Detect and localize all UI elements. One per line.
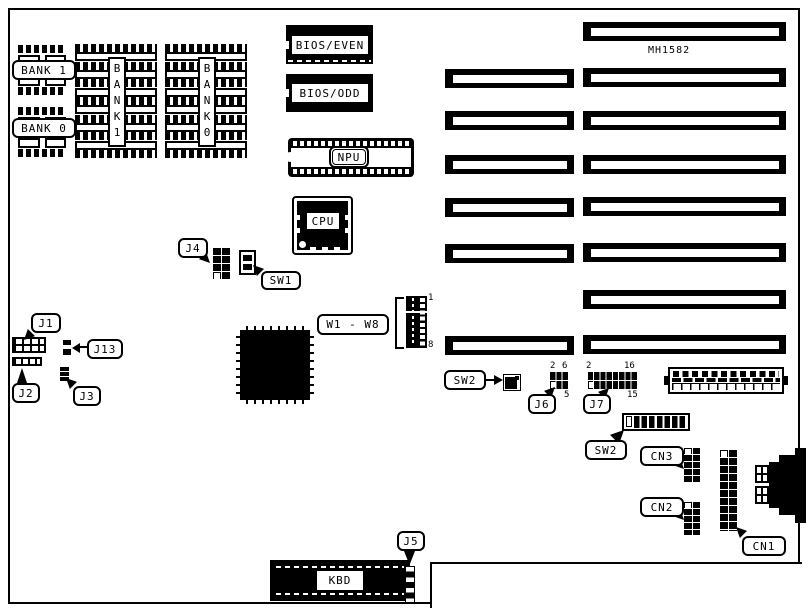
j6-pin5-number: 5	[564, 390, 569, 400]
isa-slot	[583, 197, 786, 216]
sw2a-switch	[503, 374, 521, 391]
j6-pin2-number: 2	[550, 361, 555, 371]
j7-label: J7	[583, 394, 611, 414]
bank1-label: BANK 1	[12, 60, 76, 80]
w1-w8-jumper-block	[406, 296, 427, 348]
j4-jumper-block	[213, 248, 230, 280]
cn3-label: CN3	[640, 446, 684, 466]
isa-slot	[445, 69, 574, 88]
cn3-connector-block	[684, 448, 700, 482]
cn1-label: CN1	[742, 536, 786, 556]
cn2-label: CN2	[640, 497, 684, 517]
j1-jumper-block	[12, 337, 46, 353]
j4-label: J4	[178, 238, 208, 258]
sw2b-dip-switch	[622, 413, 690, 431]
bank0-vertical-label: BANK0	[198, 57, 216, 147]
npu-label: NPU	[332, 149, 366, 165]
sw2a-label: SW2	[444, 370, 486, 390]
isa-slot	[583, 155, 786, 174]
sw1-switch	[239, 250, 256, 275]
j7-pin2-number: 2	[586, 361, 591, 371]
cpu-pin1-dot	[299, 241, 306, 248]
j3-label: J3	[73, 386, 101, 406]
j5-jumper-block	[405, 566, 415, 603]
isa-slot	[583, 335, 786, 354]
j2-label: J2	[12, 383, 40, 403]
isa-slot	[445, 244, 574, 263]
cpu-label: CPU	[306, 212, 340, 230]
w1-w8-label: W1 - W8	[317, 314, 389, 335]
w1-w8-bracket	[395, 297, 404, 349]
cn1-connector-block	[720, 450, 737, 531]
j7-pin16-number: 16	[624, 361, 635, 371]
w-pin8-number: 8	[428, 340, 433, 350]
isa-slot	[583, 243, 786, 262]
power-connector	[668, 367, 784, 394]
npu-label-frame: NPU	[329, 146, 369, 168]
isa-slot	[445, 198, 574, 217]
bios-odd-label: BIOS/ODD	[291, 83, 369, 103]
j13-jumper-block	[63, 340, 71, 355]
kbd-label: KBD	[316, 570, 364, 591]
keyboard-din-body	[779, 455, 797, 515]
qfp-pins-bottom	[246, 400, 304, 404]
power-dashes	[672, 378, 780, 382]
j2-jumper-block	[12, 357, 42, 366]
bank0-label: BANK 0	[12, 118, 76, 138]
isa-slot	[583, 22, 786, 41]
power-pins-bottom	[672, 383, 780, 390]
j6-pin6-number: 6	[562, 361, 567, 371]
power-pins-top	[673, 371, 779, 377]
sw2b-label: SW2	[585, 440, 627, 460]
isa-slot	[445, 111, 574, 130]
sw1-label: SW1	[261, 271, 301, 290]
qfp-pins-top	[246, 326, 304, 330]
qfp-pins-left	[236, 336, 240, 394]
cn2-connector-block	[684, 502, 700, 535]
bank1-vertical-label: BANK1	[108, 57, 126, 147]
isa-slot	[583, 290, 786, 309]
w-pin1-number: 1	[428, 293, 433, 303]
j7-jumper-block	[588, 372, 638, 389]
board-outline-step	[430, 562, 802, 608]
keyboard-din-pin	[755, 465, 769, 483]
j6-jumper-block	[550, 372, 569, 389]
isa-slot	[583, 111, 786, 130]
j5-label: J5	[397, 531, 425, 551]
board-model-label: MH1582	[648, 45, 690, 56]
bios-even-label: BIOS/EVEN	[291, 35, 369, 55]
isa-slot	[583, 68, 786, 87]
isa-slot	[445, 336, 574, 355]
j7-pin15-number: 15	[627, 390, 638, 400]
j13-label: J13	[87, 339, 123, 359]
isa-slot	[445, 155, 574, 174]
j6-label: J6	[528, 394, 556, 414]
keyboard-din-pin	[755, 486, 769, 504]
qfp-pins-right	[310, 336, 314, 394]
j1-label: J1	[31, 313, 61, 333]
motherboard-diagram: MH1582 BANK 1 BANK 0 BANK1 BANK0 BIOS/EV…	[0, 0, 812, 616]
qfp-chip	[240, 330, 310, 400]
